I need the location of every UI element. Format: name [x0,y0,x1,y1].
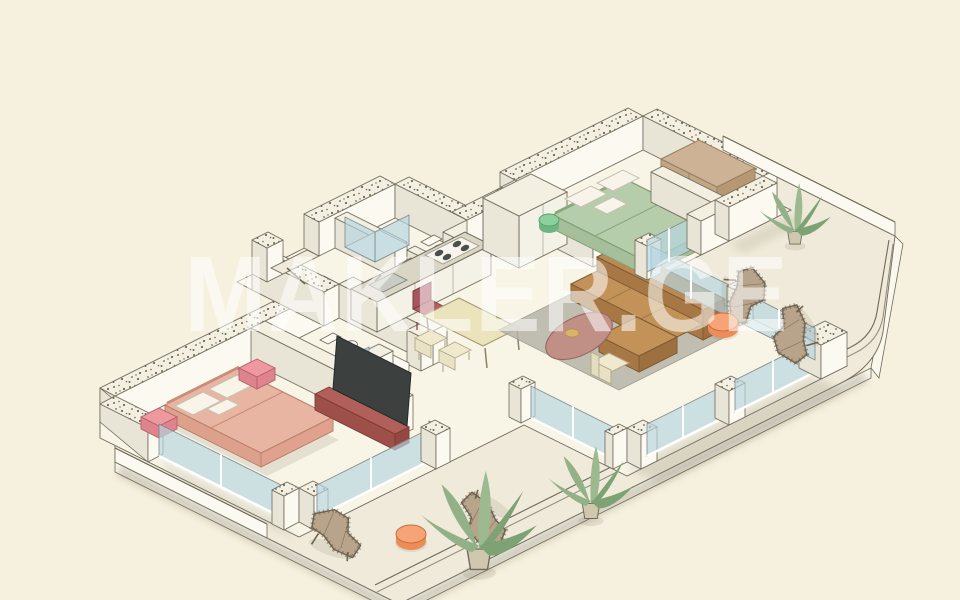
green-pouf [539,214,559,233]
floor-plan-screenshot: MAKLER.GE [0,0,960,600]
orange-pouf [395,525,427,552]
apartment-axonometric-illustration: MAKLER.GE [0,0,960,600]
watermark-text: MAKLER.GE [185,233,790,354]
